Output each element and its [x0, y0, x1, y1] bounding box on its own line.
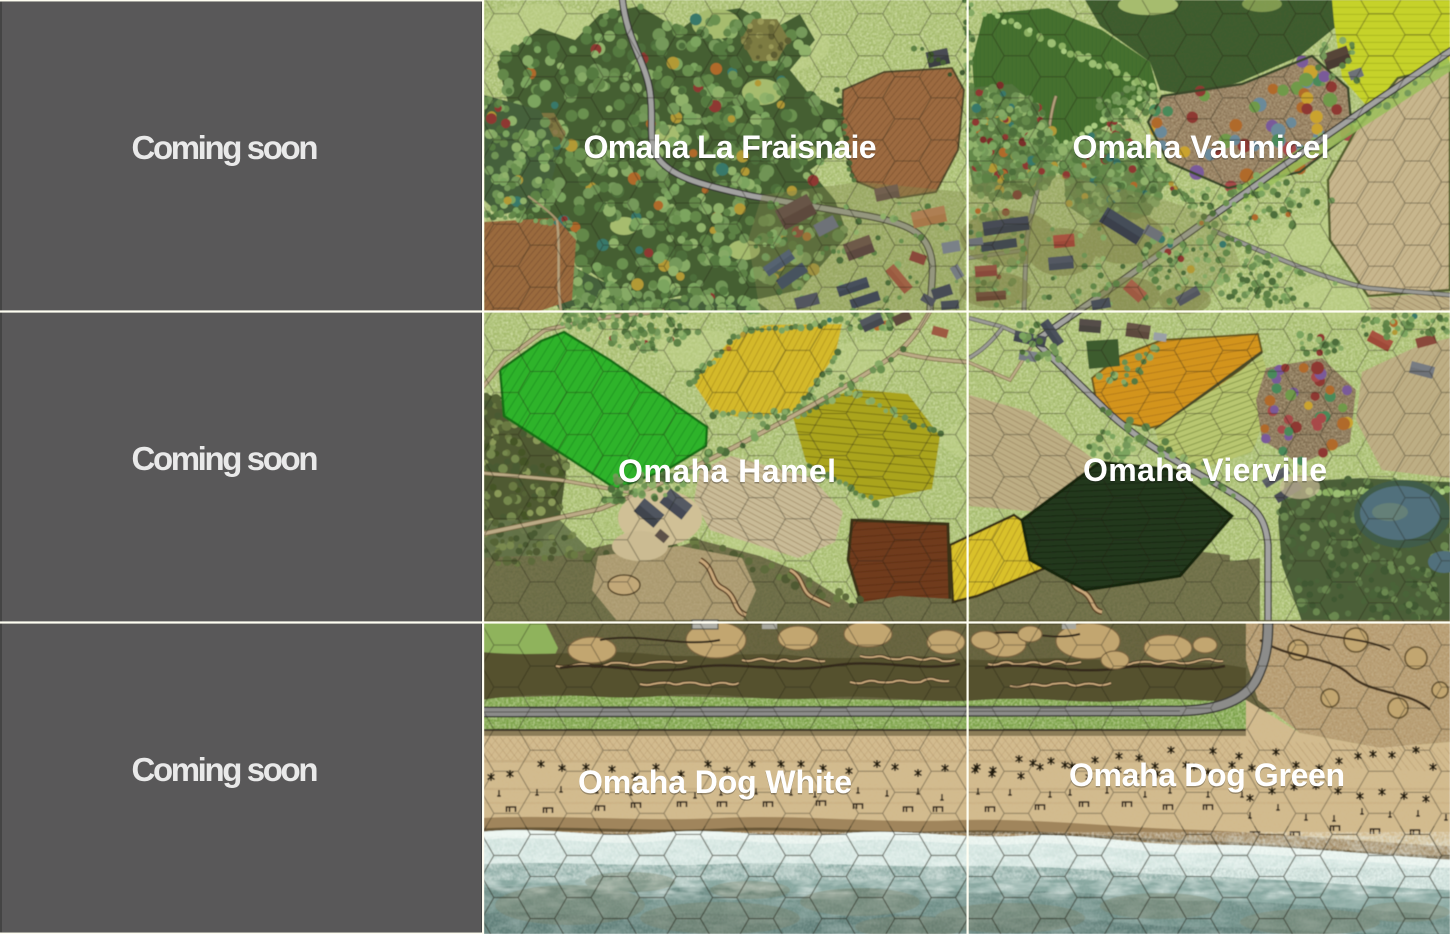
svg-text:Coming soon: Coming soon — [132, 440, 319, 477]
svg-text:Coming soon: Coming soon — [132, 129, 319, 166]
svg-text:Omaha Hamel: Omaha Hamel — [618, 453, 836, 489]
svg-text:Omaha Vierville: Omaha Vierville — [1083, 452, 1327, 488]
svg-text:Omaha Vaumicel: Omaha Vaumicel — [1073, 129, 1330, 165]
svg-text:Omaha La Fraisnaie: Omaha La Fraisnaie — [584, 129, 877, 165]
svg-text:Omaha Dog White: Omaha Dog White — [578, 764, 852, 800]
svg-text:Omaha Dog Green: Omaha Dog Green — [1069, 757, 1345, 793]
svg-text:Coming soon: Coming soon — [132, 751, 319, 788]
